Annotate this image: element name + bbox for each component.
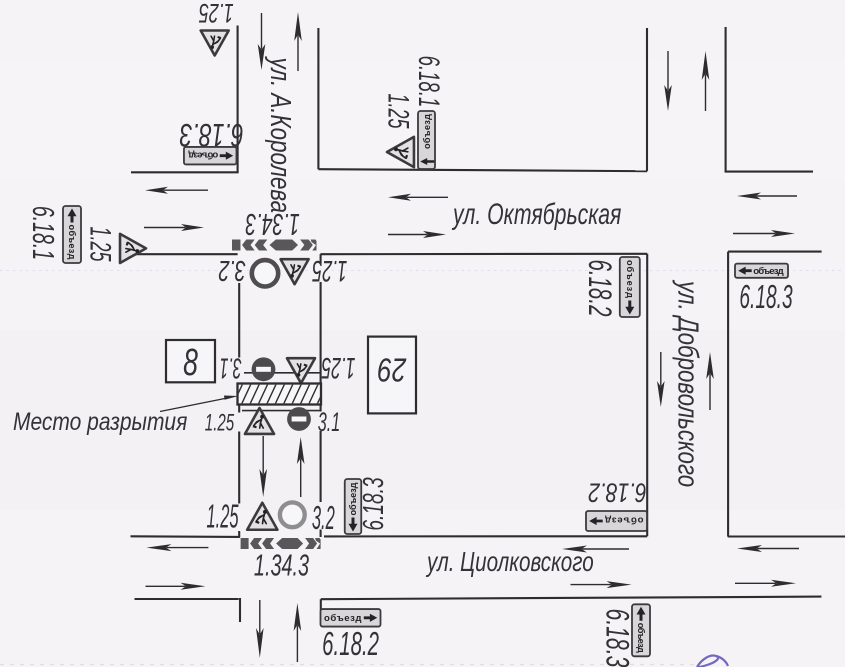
svg-text:объезд: объезд bbox=[636, 623, 646, 653]
svg-text:1.25: 1.25 bbox=[83, 226, 116, 261]
svg-text:объезд: объезд bbox=[188, 149, 218, 160]
svg-text:1.25: 1.25 bbox=[199, 0, 234, 29]
svg-text:1.25: 1.25 bbox=[205, 410, 235, 436]
svg-text:ул. Октябрьская: ул. Октябрьская bbox=[451, 199, 621, 231]
svg-text:6.18.3: 6.18.3 bbox=[599, 609, 636, 667]
svg-text:6.18.3: 6.18.3 bbox=[358, 477, 390, 530]
svg-text:6.18.2: 6.18.2 bbox=[588, 477, 647, 507]
svg-text:3.1: 3.1 bbox=[318, 407, 341, 437]
svg-text:1.34.3: 1.34.3 bbox=[245, 207, 300, 241]
svg-text:1.25: 1.25 bbox=[206, 497, 238, 535]
svg-text:ул. Циолковского: ул. Циолковского bbox=[425, 547, 593, 578]
svg-text:объезд: объезд bbox=[324, 613, 362, 624]
svg-text:6.18.1: 6.18.1 bbox=[26, 206, 60, 260]
svg-text:29: 29 bbox=[378, 351, 407, 388]
svg-text:6.18.3: 6.18.3 bbox=[739, 279, 792, 316]
svg-text:ул. Добровольского: ул. Добровольского bbox=[672, 279, 703, 487]
svg-text:объезд: объезд bbox=[422, 114, 432, 149]
svg-text:объезд: объезд bbox=[67, 225, 77, 260]
svg-text:объезд: объезд bbox=[605, 515, 644, 526]
svg-text:3.1: 3.1 bbox=[220, 352, 242, 384]
svg-text:1.34.3: 1.34.3 bbox=[254, 547, 310, 583]
svg-text:ул. А.Королева: ул. А.Королева bbox=[264, 56, 295, 213]
svg-text:3.2: 3.2 bbox=[312, 498, 335, 536]
svg-text:3.2: 3.2 bbox=[218, 254, 246, 286]
svg-text:8: 8 bbox=[183, 340, 198, 383]
svg-text:объезд: объезд bbox=[753, 266, 784, 277]
svg-text:6.18.1: 6.18.1 bbox=[412, 56, 446, 108]
svg-text:6.18.2: 6.18.2 bbox=[582, 260, 618, 317]
svg-text:объезд: объезд bbox=[625, 260, 635, 298]
svg-text:объезд: объезд bbox=[348, 482, 358, 515]
svg-text:1.25: 1.25 bbox=[381, 93, 414, 128]
svg-text:1.25: 1.25 bbox=[321, 351, 355, 384]
svg-text:1.25: 1.25 bbox=[312, 254, 347, 287]
svg-text:6.18.2: 6.18.2 bbox=[322, 625, 379, 662]
